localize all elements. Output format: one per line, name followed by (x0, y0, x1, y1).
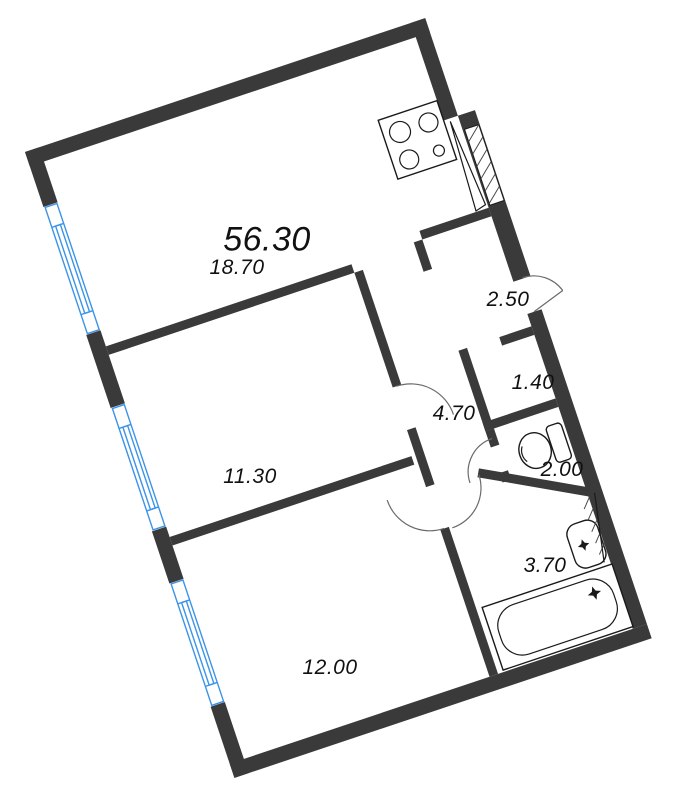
window (112, 405, 164, 530)
total-area-label: 56.30 (223, 221, 311, 260)
entry-hall-area-label: 2.50 (487, 288, 530, 312)
floor-plan-page: 56.30 18.70 11.30 12.00 2.50 4.70 1.40 2… (0, 0, 695, 800)
door-arc-bathroom (439, 475, 492, 528)
closet-area-label: 1.40 (512, 371, 555, 395)
floor-plan-drawing (0, 0, 695, 800)
corridor-area-label: 4.70 (433, 402, 476, 426)
bedroom-1-area-label: 11.30 (223, 465, 277, 489)
window (45, 204, 99, 334)
window (171, 580, 223, 705)
door-arc-bedroom-2 (387, 486, 444, 543)
bedroom-2-area-label: 12.00 (302, 656, 357, 680)
wc-area-label: 2.00 (541, 458, 584, 482)
living-kitchen-area-label: 18.70 (209, 256, 264, 280)
bathroom-area-label: 3.70 (524, 554, 567, 578)
